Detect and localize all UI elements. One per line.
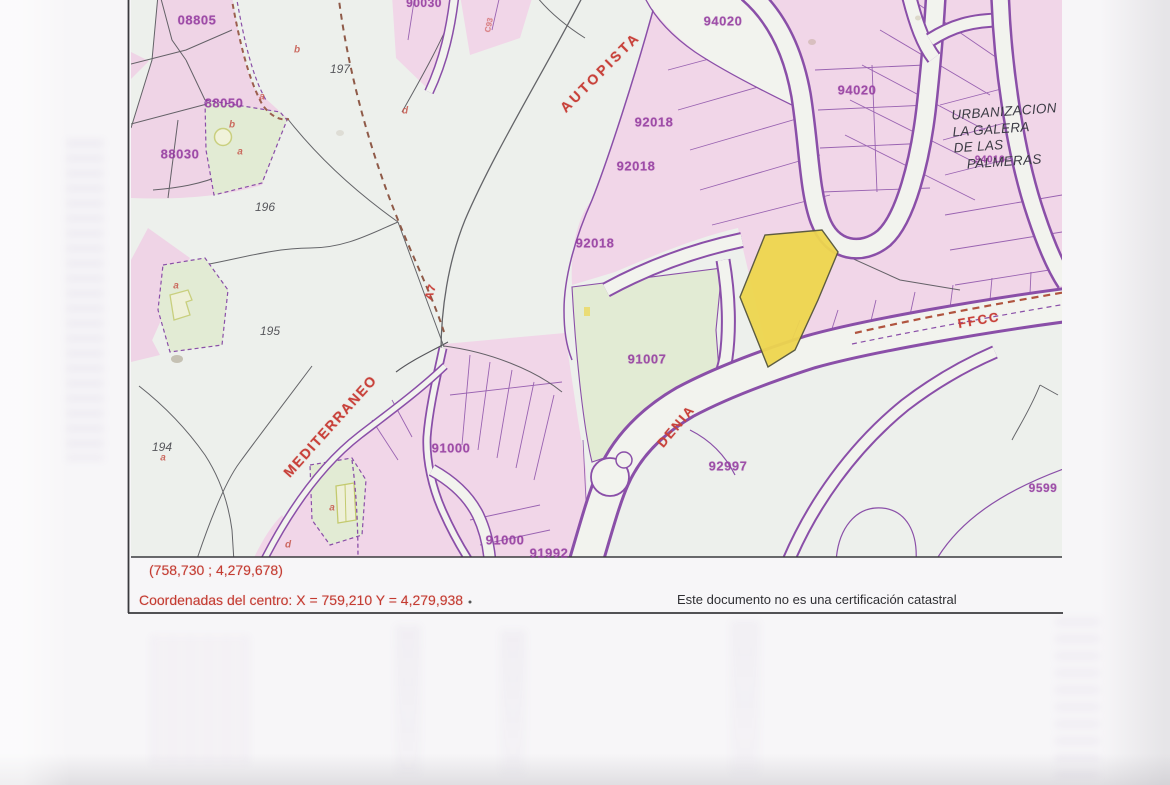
disclaimer-text: Este documento no es una certificación c… — [677, 592, 957, 607]
center-coordinates: Coordenadas del centro: X = 759,210 Y = … — [139, 592, 463, 608]
urbanization-name-label: URBANIZACION LA GALERA DE LAS PALMERAS — [951, 99, 1085, 174]
corner-coordinates: (758,730 ; 4,279,678) — [149, 562, 283, 578]
building-outline — [215, 129, 232, 146]
scanned-cadastral-map-page: 0880588050880309003092018920189201891007… — [0, 0, 1170, 785]
scan-speck — [469, 601, 472, 604]
